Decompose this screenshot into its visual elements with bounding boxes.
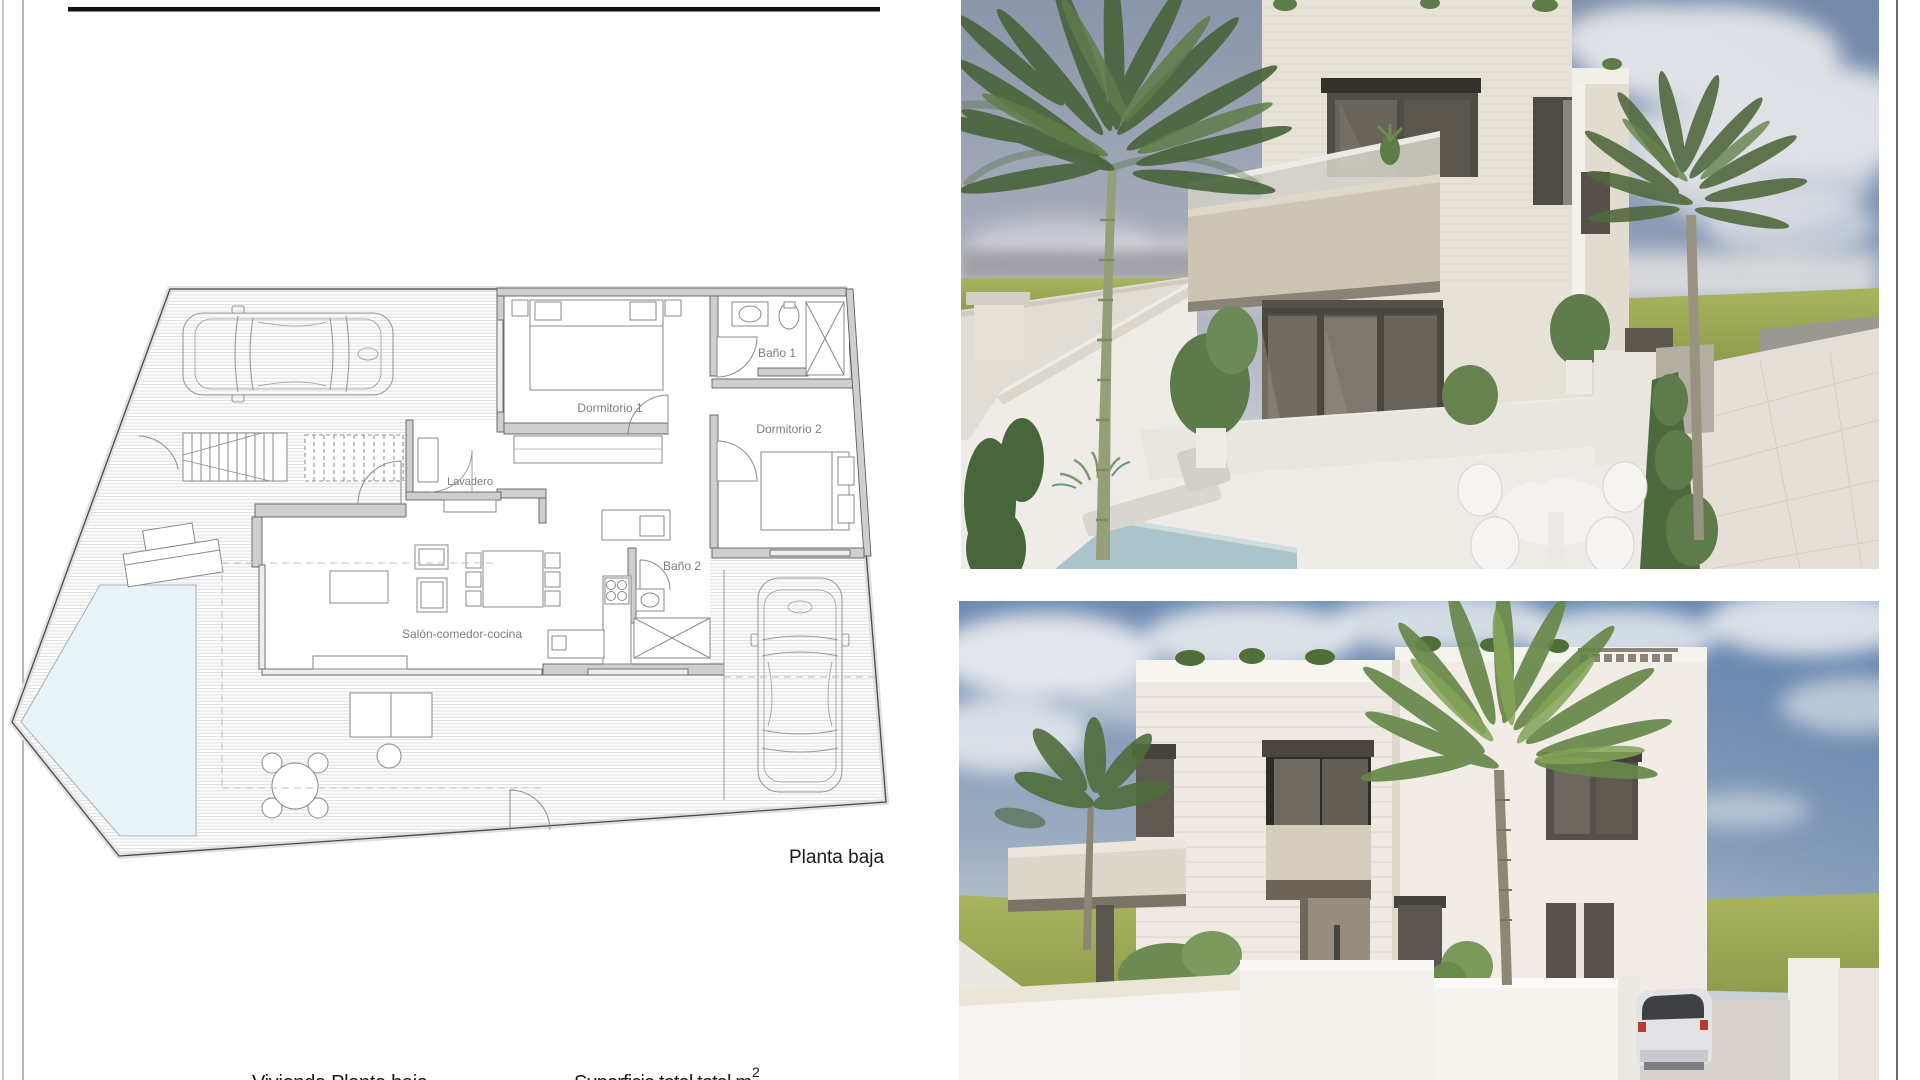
svg-text:Baño 2: Baño 2 (663, 559, 701, 573)
svg-text:Lavadero: Lavadero (447, 476, 493, 488)
svg-text:Superficie total total m: Superficie total total m (574, 1072, 752, 1080)
svg-text:Dormitorio 2: Dormitorio 2 (756, 422, 822, 436)
svg-text:2: 2 (752, 1064, 760, 1080)
svg-text:Planta baja: Planta baja (789, 847, 885, 868)
svg-text:Dormitorio 1: Dormitorio 1 (577, 401, 643, 415)
svg-text:Vivienda Planta baja: Vivienda Planta baja (252, 1072, 429, 1080)
svg-text:Salón-comedor-cocina: Salón-comedor-cocina (402, 627, 522, 641)
svg-text:Baño 1: Baño 1 (758, 346, 796, 360)
